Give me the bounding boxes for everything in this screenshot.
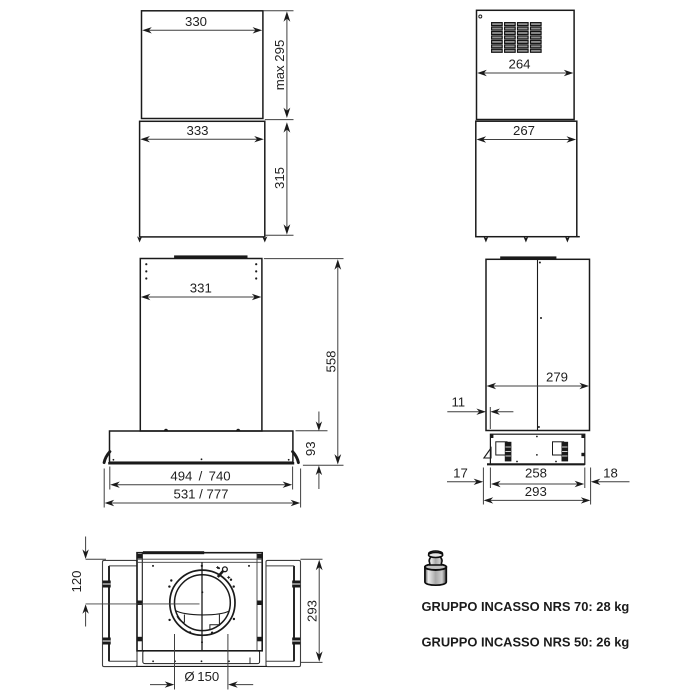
svg-text:293: 293: [304, 600, 319, 622]
svg-text:267: 267: [513, 123, 535, 138]
svg-text:GRUPPO INCASSO NRS 50: 26 kg: GRUPPO INCASSO NRS 50: 26 kg: [422, 635, 630, 650]
svg-text:258: 258: [525, 466, 547, 481]
svg-text:315: 315: [272, 167, 287, 189]
svg-text:264: 264: [508, 57, 530, 72]
svg-text:293: 293: [525, 484, 547, 499]
svg-text:531 / 777: 531 / 777: [174, 487, 229, 502]
svg-text:279: 279: [546, 370, 568, 385]
svg-text:333: 333: [186, 123, 208, 138]
svg-text:GRUPPO INCASSO NRS 70: 28 kg: GRUPPO INCASSO NRS 70: 28 kg: [422, 599, 630, 614]
svg-text:93: 93: [303, 441, 318, 456]
svg-text:max 295: max 295: [272, 40, 287, 91]
svg-text:18: 18: [603, 466, 618, 481]
svg-text:Ø 150: Ø 150: [184, 669, 219, 684]
svg-text:330: 330: [185, 14, 207, 29]
svg-text:17: 17: [453, 466, 468, 481]
svg-text:558: 558: [323, 350, 338, 372]
svg-text:120: 120: [69, 570, 84, 592]
svg-text:11: 11: [451, 394, 465, 409]
svg-text:331: 331: [190, 281, 212, 296]
svg-text:494 / 740: 494 / 740: [170, 468, 230, 483]
